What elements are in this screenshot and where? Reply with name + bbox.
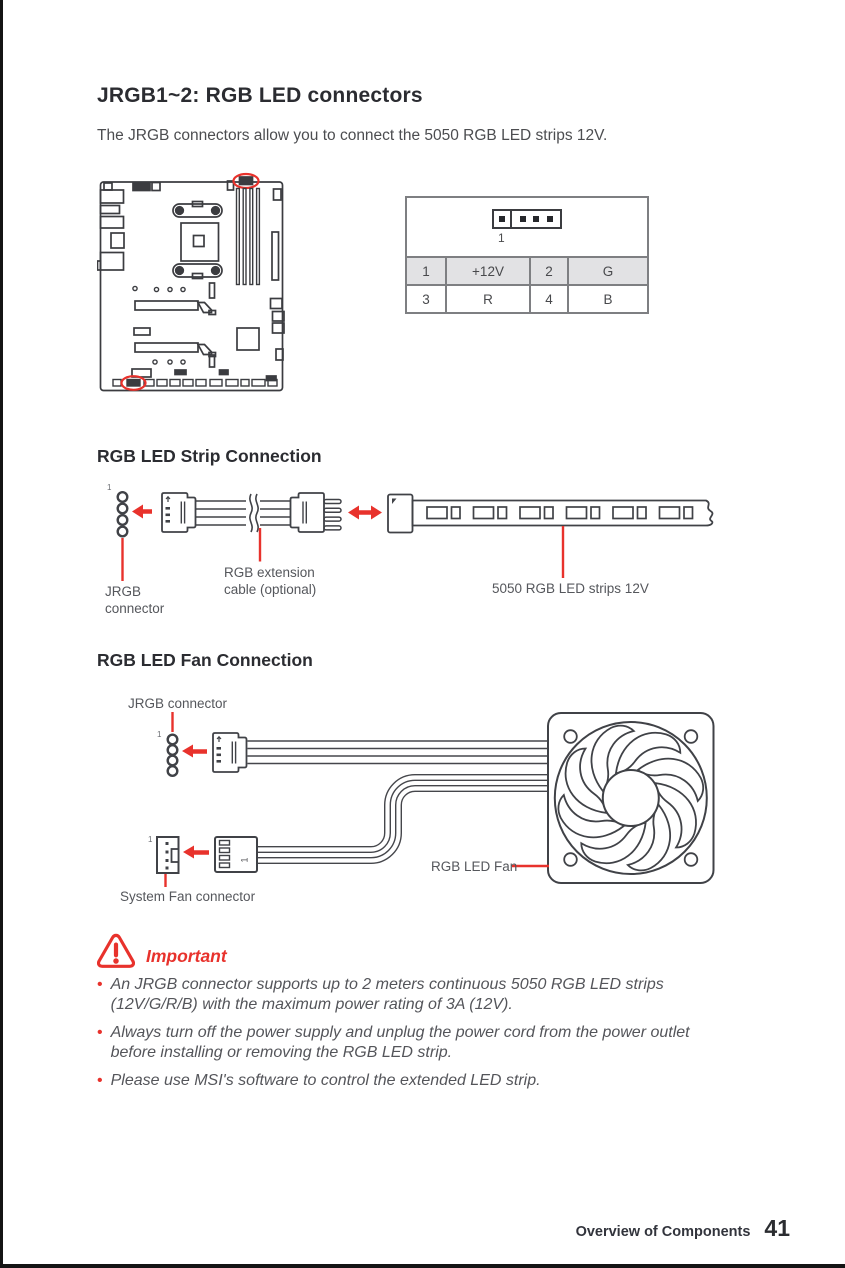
important-notes: • An JRGB connector supports up to 2 met…: [97, 975, 697, 1100]
chipset: [237, 328, 259, 350]
page-edge-bottom: [0, 1264, 845, 1268]
led-strip: [388, 495, 712, 533]
jrgb-header-pins: [168, 735, 178, 776]
strip-connection-diagram: [95, 478, 745, 590]
pin-cell: 2: [529, 258, 567, 284]
pin1-marker: 1: [107, 483, 111, 492]
left-arrow-icon: [182, 745, 207, 758]
jrgb-connector-label: JRGB connector: [105, 583, 164, 617]
fan-section-heading: RGB LED Fan Connection: [97, 650, 313, 671]
fan-hub: [603, 770, 659, 826]
pin1-marker: 1: [157, 730, 161, 739]
cable-break-mark: [250, 494, 252, 532]
pin-cell: G: [567, 258, 647, 284]
led-chips: [427, 507, 693, 519]
cable-break-mark: [256, 494, 258, 532]
strip-pin1-mark: [392, 499, 397, 505]
pin1-marker: 1: [498, 231, 505, 245]
left-arrow-icon: [132, 505, 152, 519]
pin1-marker: 1: [148, 835, 152, 844]
important-bullet: • Please use MSI's software to control t…: [97, 1071, 697, 1091]
footer-section-title: Overview of Components: [576, 1224, 751, 1240]
ram-slots: [237, 189, 260, 285]
pin-table-connector-art: 1: [407, 198, 647, 256]
jrgb-header-pins: [118, 492, 128, 536]
bullet-dot: •: [97, 1023, 103, 1062]
pin1-arrow-mark: [166, 497, 170, 502]
pin-table-grid: 1 +12V 2 G 3 R 4 B: [407, 256, 647, 312]
page-title: JRGB1~2: RGB LED connectors: [97, 84, 423, 108]
footer-page-number: 41: [764, 1215, 790, 1242]
bullet-dot: •: [97, 1071, 103, 1091]
rgb-plug: [213, 733, 247, 772]
led-strip-label: 5050 RGB LED strips 12V: [492, 580, 649, 597]
rgb-led-fan-label: RGB LED Fan: [431, 858, 517, 875]
page-footer: Overview of Components 41: [576, 1215, 790, 1242]
rgb-plug-male: [291, 493, 342, 532]
jrgb1-connector-pad: [240, 177, 253, 185]
extension-cable-wires: [196, 494, 290, 532]
pin-cell: 4: [529, 284, 567, 312]
important-bullet: • An JRGB connector supports up to 2 met…: [97, 975, 697, 1014]
jrgb-connector-label: JRGB connector: [128, 695, 227, 712]
pin-cell: 3: [407, 284, 445, 312]
page-edge-left: [0, 0, 3, 1268]
system-fan-connector-label: System Fan connector: [120, 888, 255, 905]
pin-cell: B: [567, 284, 647, 312]
motherboard-diagram: [97, 172, 289, 398]
important-bullet: • Always turn off the power supply and u…: [97, 1023, 697, 1062]
intro-text: The JRGB connectors allow you to connect…: [97, 127, 607, 145]
bullet-dot: •: [97, 975, 103, 1014]
pin-definition-table: 1 1 +12V 2 G 3 R 4 B: [405, 196, 649, 314]
jrgb2-connector-pad: [127, 380, 140, 387]
pin-cell: 1: [407, 258, 445, 284]
rear-io-ports: [98, 190, 125, 270]
left-arrow-icon: [183, 846, 209, 859]
strip-section-heading: RGB LED Strip Connection: [97, 446, 322, 467]
manual-page: JRGB1~2: RGB LED connectors The JRGB con…: [0, 0, 845, 1268]
double-arrow-icon: [348, 506, 382, 520]
cpu-socket: [173, 202, 222, 279]
warning-icon: [97, 933, 135, 969]
pin-cell: +12V: [445, 258, 529, 284]
bottom-headers: [113, 380, 277, 387]
rgb-led-fan: [548, 713, 714, 883]
system-fan-header: [157, 837, 179, 873]
important-heading: Important: [146, 946, 227, 967]
pin1-marker: 1: [240, 857, 250, 862]
connector-icon: [492, 209, 562, 229]
fan-connection-diagram: [95, 688, 747, 890]
rgb-plug: [162, 493, 196, 532]
extension-cable-label: RGB extension cable (optional): [224, 564, 316, 598]
fan-power-plug: [215, 837, 257, 872]
fan-wires-bottom: [258, 783, 550, 855]
pin-cell: R: [445, 284, 529, 312]
